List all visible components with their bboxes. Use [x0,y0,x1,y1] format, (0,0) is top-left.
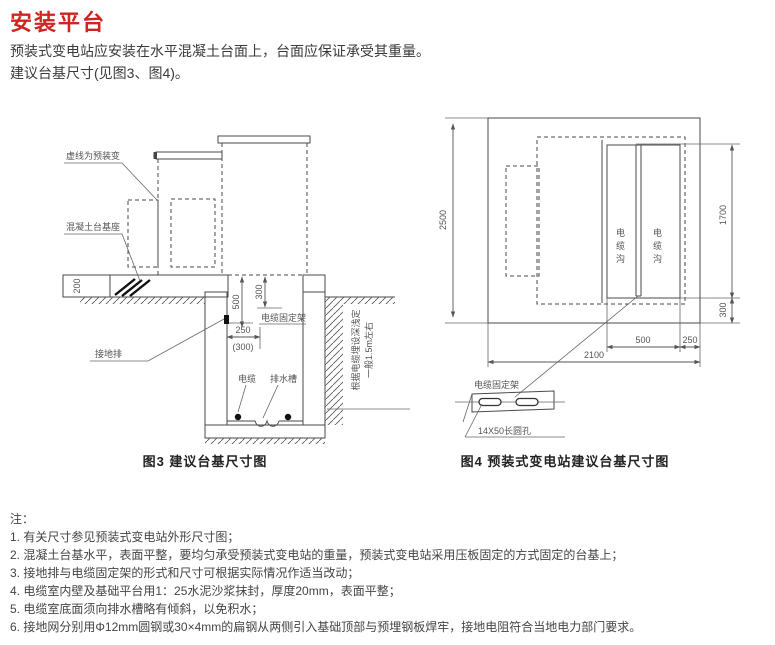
dim-500-label: 500 [635,335,650,345]
dashed-outline-label: 虚线为预装变 [66,150,120,161]
slot-left [479,399,501,406]
dim-200-label: 200 [72,278,82,293]
dim-250-alt-label: (300) [232,342,253,352]
ground-bar-callout: 接地排 [90,319,224,361]
concrete-base-label: 混凝土台基座 [66,221,120,232]
figure4-caption: 图4 预装式变电站建议台基尺寸图 [420,451,710,470]
dimension-2500: 2500 [438,118,488,323]
figure4-drawing: 2500 1700 300 500 250 2100 电缆固定架 14X50长圆… [430,110,765,455]
dim-2100-label: 2100 [584,350,604,360]
foundation-plan [488,118,700,323]
ground-bar-label: 接地排 [95,348,122,359]
notes-section: 注： 1. 有关尺寸参见预装式变电站外形尺寸图； 2. 混凝土台基水平，表面平整… [10,510,641,636]
cable-trench-right-label: 电缆沟 [652,228,662,278]
slot-label: 14X50长圆孔 [478,425,531,436]
cable-dot-right [285,414,291,420]
dimension-300: 300 [254,277,265,307]
cable-dot-left [235,414,241,420]
drain-label: 排水槽 [270,373,297,384]
dim-250-label: 250 [235,325,250,335]
figure3-caption: 图3 建议台基尺寸图 [45,451,365,470]
slot-right [516,399,538,406]
depth-note: 一般1.5m左右 根据电缆埋设深浅定 [350,309,374,390]
cable-drain-callouts: 电缆 排水槽 [238,373,297,418]
note-item-3: 3. 接地排与电缆固定架的形式和尺寸可根据实际情况作适当改动； [10,564,641,582]
figure3-drawing: 200 500 300 电缆固定架 2 [60,105,420,450]
transformer-dashed-outline [128,143,307,275]
concrete-platform: 200 [63,275,325,297]
trench-divider [636,145,641,296]
dim-250-label: 250 [682,335,697,345]
cable-bracket-detail: 电缆固定架 14X50长圆孔 [455,296,638,437]
roof-slabs [154,136,311,159]
note-item-6: 6. 接地网分别用Φ12mm圆钢或30×4mm的扁钢从两侧引入基础顶部与预埋钢板… [10,618,641,636]
page-title: 安装平台 [10,5,106,37]
dim-1700-label: 1700 [718,205,728,225]
depth-note-line2: 根据电缆埋设深浅定 [350,309,361,390]
note-item-1: 1. 有关尺寸参见预装式变电站外形尺寸图； [10,528,641,546]
cable-bracket-callout: 电缆固定架 [257,308,306,324]
intro-line-1: 预装式变电站应安装在水平混凝土台面上，台面应保证承受其重量。 [10,40,430,62]
dim-300-label: 300 [718,302,728,317]
ground-bar-mark [224,315,229,324]
dimension-500: 500 [231,277,242,327]
dim-500-label: 500 [231,294,241,309]
dim-2500-label: 2500 [438,210,448,230]
notes-heading: 注： [10,510,641,528]
note-item-5: 5. 电缆室底面须向排水槽略有倾斜，以免积水； [10,600,641,618]
dim-300-label: 300 [254,284,264,299]
depth-note-line1: 一般1.5m左右 [363,322,374,378]
intro-line-2: 建议台基尺寸(见图3、图4)。 [10,62,430,84]
dimension-250: 250 (300) [227,325,260,352]
intro-paragraph: 预装式变电站应安装在水平混凝土台面上，台面应保证承受其重量。 建议台基尺寸(见图… [10,40,430,84]
concrete-base-callout: 混凝土台基座 [64,221,140,281]
note-item-4: 4. 电缆室内壁及基础平台用1：25水泥沙浆抹封，厚度20mm，表面平整； [10,582,641,600]
cable-trench-left-label: 电缆沟 [615,228,625,278]
cable-label: 电缆 [238,373,256,384]
cable-bracket-label: 电缆固定架 [474,379,519,390]
cable-bracket-label: 电缆固定架 [261,312,306,323]
note-item-2: 2. 混凝土台基水平，表面平整，要均匀承受预装式变电站的重量，预装式变电站采用压… [10,546,641,564]
dashed-outline-callout: 虚线为预装变 [64,150,157,200]
